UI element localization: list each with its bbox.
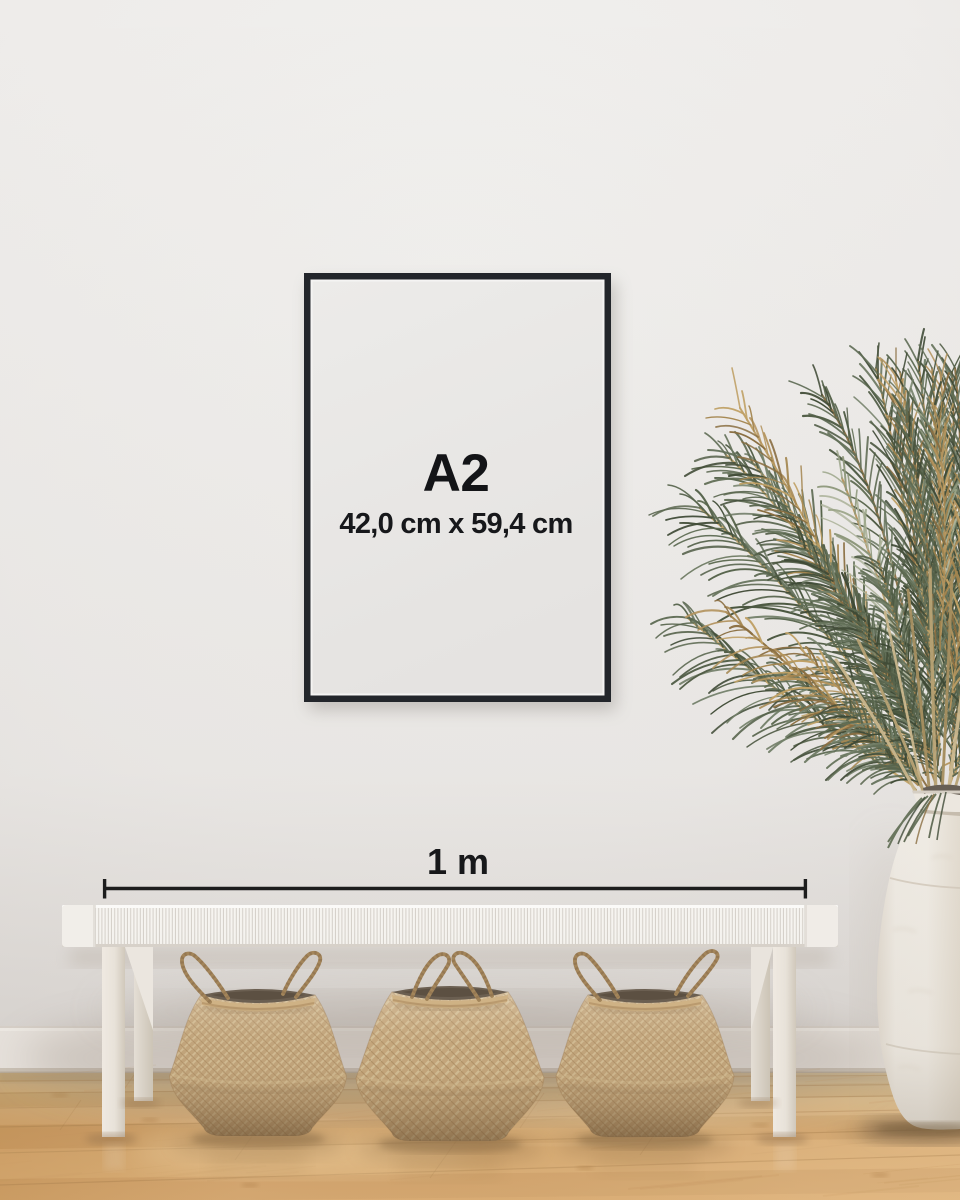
svg-text:1 m: 1 m — [427, 841, 489, 882]
svg-text:A2: A2 — [423, 444, 490, 503]
svg-text:42,0 cm x 59,4 cm: 42,0 cm x 59,4 cm — [339, 508, 572, 540]
